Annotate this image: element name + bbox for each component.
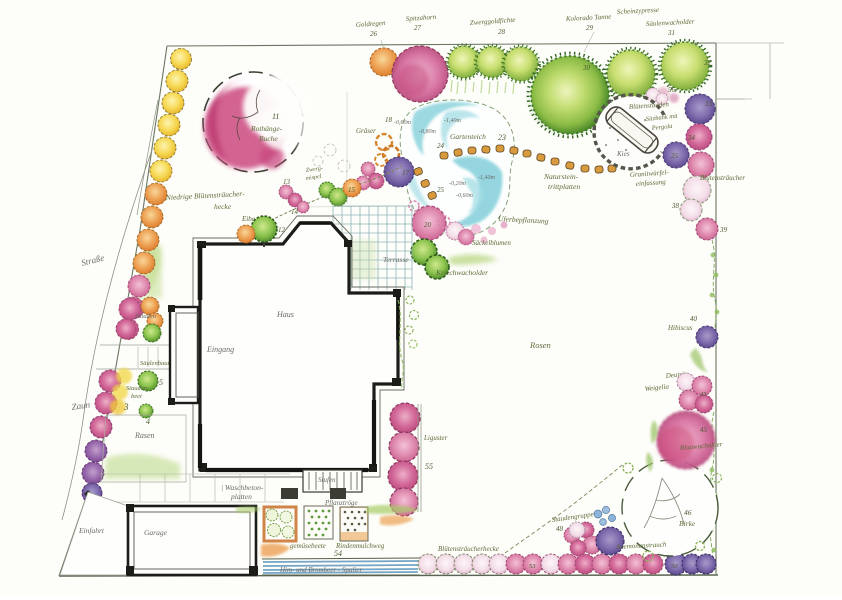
svg-text:33: 33 (704, 100, 713, 108)
svg-text:40: 40 (690, 315, 698, 323)
svg-text:Rasen: Rasen (134, 431, 155, 440)
svg-text:trittplatten: trittplatten (548, 182, 580, 191)
svg-text:17: 17 (402, 169, 410, 177)
svg-text:-0,20m: -0,20m (449, 181, 466, 187)
svg-text:Terrasse: Terrasse (383, 255, 409, 264)
svg-text:5: 5 (159, 378, 163, 387)
svg-text:34: 34 (687, 134, 696, 142)
svg-text:25: 25 (671, 152, 679, 160)
svg-text:12: 12 (278, 226, 286, 234)
svg-text:27: 27 (414, 24, 422, 32)
svg-text:45: 45 (700, 426, 708, 434)
svg-text:54: 54 (334, 549, 342, 558)
svg-text:Kriechwacholder: Kriechwacholder (435, 268, 488, 277)
svg-text:| Waschbeton-: | Waschbeton- (221, 483, 264, 492)
svg-text:32: 32 (703, 59, 712, 67)
svg-text:Liguster: Liguster (423, 434, 448, 442)
svg-text:-1,40m: -1,40m (478, 174, 495, 181)
svg-text:14: 14 (291, 208, 299, 216)
svg-text:53: 53 (529, 563, 536, 570)
svg-text:hecke: hecke (214, 202, 232, 211)
svg-text:48: 48 (556, 525, 564, 533)
svg-text:4: 4 (146, 417, 150, 426)
svg-text:Einfahrt: Einfahrt (78, 526, 105, 535)
svg-text:Stauden: Stauden (135, 313, 156, 320)
svg-text:Stufen: Stufen (318, 476, 336, 484)
svg-text:Säulenbaum: Säulenbaum (140, 360, 172, 367)
svg-text:Blütensträucher: Blütensträucher (700, 174, 745, 182)
svg-text:Blütensträucherhecke: Blütensträucherhecke (438, 545, 499, 553)
svg-text:Gartenteich: Gartenteich (450, 132, 486, 141)
svg-text:Hibiscus: Hibiscus (667, 324, 693, 332)
svg-text:-0,80m: -0,80m (419, 129, 436, 135)
svg-text:Rindenmulchweg: Rindenmulchweg (335, 542, 385, 550)
svg-text:3: 3 (123, 402, 129, 412)
svg-text:beet: beet (131, 393, 142, 400)
svg-text:25: 25 (437, 186, 445, 194)
svg-text:30: 30 (582, 64, 591, 72)
svg-text:11: 11 (272, 112, 279, 121)
svg-text:Naturstein-: Naturstein- (543, 172, 579, 181)
svg-text:gemüsebeete: gemüsebeete (290, 542, 326, 550)
svg-text:56: 56 (668, 86, 676, 94)
svg-text:Buche: Buche (259, 134, 278, 143)
svg-text:50: 50 (671, 563, 678, 570)
svg-text:Säckelblumen: Säckelblumen (472, 239, 511, 247)
svg-text:39: 39 (719, 226, 728, 234)
svg-text:Eingang: Eingang (206, 345, 234, 354)
svg-text:Eibe: Eibe (241, 215, 255, 223)
svg-text:platten: platten (230, 492, 252, 501)
svg-text:29: 29 (586, 24, 594, 32)
svg-text:18: 18 (385, 116, 393, 124)
svg-text:31: 31 (667, 29, 675, 37)
svg-text:15: 15 (348, 186, 356, 194)
svg-text:Him- und Brombeer - Spalier: Him- und Brombeer - Spalier (279, 566, 362, 574)
svg-text:Birke: Birke (679, 519, 696, 528)
svg-text:Garage: Garage (144, 528, 168, 537)
svg-text:Kies: Kies (616, 150, 630, 158)
svg-text:23: 23 (498, 133, 506, 142)
svg-text:-0,60m: -0,60m (394, 120, 411, 126)
svg-text:Stauden-: Stauden- (126, 385, 149, 392)
svg-text:26: 26 (370, 30, 378, 38)
svg-text:-0,60m: -0,60m (456, 193, 473, 199)
svg-text:55: 55 (425, 462, 433, 471)
svg-text:20: 20 (424, 221, 432, 229)
svg-text:24: 24 (437, 142, 445, 150)
svg-text:Rosen: Rosen (529, 340, 551, 350)
svg-text:-1,40m: -1,40m (444, 117, 461, 124)
svg-text:Gräser: Gräser (356, 127, 376, 135)
svg-text:Rothänge-: Rothänge- (250, 124, 283, 133)
svg-text:43: 43 (700, 391, 707, 398)
svg-text:38: 38 (671, 202, 680, 210)
svg-text:Haus: Haus (276, 310, 294, 319)
svg-text:28: 28 (498, 28, 506, 36)
svg-text:46: 46 (684, 508, 692, 517)
